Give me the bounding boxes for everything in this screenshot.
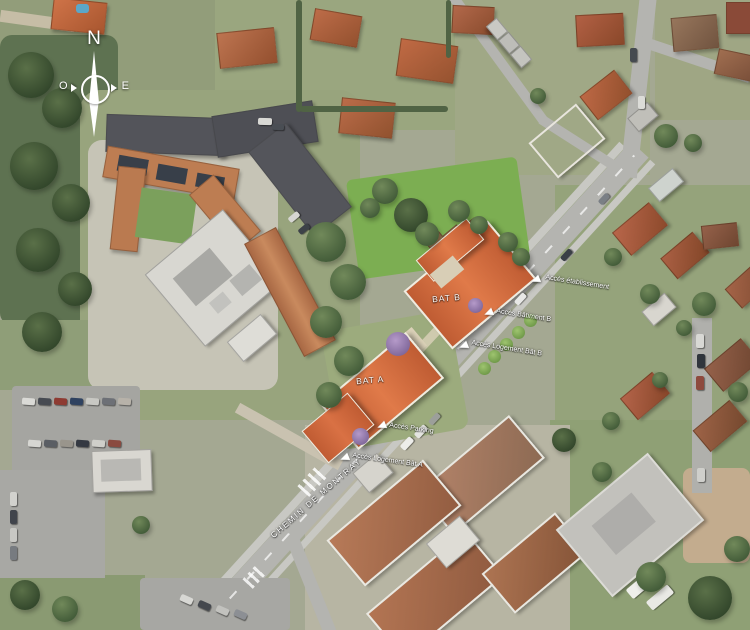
car	[108, 440, 121, 448]
car	[272, 124, 284, 130]
tree	[470, 216, 488, 234]
house-roof	[726, 2, 750, 34]
solar-panel	[156, 164, 188, 185]
car	[70, 398, 83, 406]
compass-east-label: E	[122, 80, 129, 92]
tree	[415, 222, 439, 246]
van	[258, 118, 272, 125]
car	[10, 546, 17, 560]
roof-detail	[209, 292, 232, 314]
car	[76, 440, 89, 448]
swimming-pool	[76, 4, 89, 13]
tree	[52, 596, 78, 622]
house-roof	[216, 27, 277, 69]
courtyard-lawn	[135, 187, 197, 244]
tree	[316, 382, 342, 408]
car	[118, 398, 131, 406]
tree	[306, 222, 346, 262]
car	[10, 528, 17, 542]
tree	[52, 184, 90, 222]
shrub	[512, 326, 525, 339]
compass-north-label: N	[87, 28, 101, 50]
tree	[684, 134, 702, 152]
hedge	[300, 106, 448, 112]
parking-lot	[0, 470, 105, 578]
car	[10, 492, 17, 506]
house-roof	[671, 14, 720, 52]
tree	[22, 312, 62, 352]
house-roof	[575, 13, 625, 47]
tree	[592, 462, 612, 482]
car	[697, 468, 705, 482]
house-roof	[701, 222, 739, 250]
tree	[8, 52, 54, 98]
tree	[330, 264, 366, 300]
tree	[530, 88, 546, 104]
car	[44, 440, 57, 448]
hedge	[446, 0, 451, 58]
car	[638, 96, 645, 109]
tree	[636, 562, 666, 592]
tree	[724, 536, 750, 562]
flowering-tree	[386, 332, 410, 356]
tree	[360, 198, 380, 218]
compass-east-arrow-icon	[111, 84, 117, 92]
house-roof	[338, 97, 395, 138]
car	[697, 354, 705, 368]
car	[102, 398, 115, 406]
aerial-site-plan: BAT B BAT A	[0, 0, 750, 630]
shrub	[478, 362, 491, 375]
tree	[604, 248, 622, 266]
tree	[728, 382, 748, 402]
car	[60, 440, 73, 448]
building-roof	[91, 449, 152, 493]
car	[54, 398, 67, 406]
tree	[688, 576, 732, 620]
compass: N O E	[56, 28, 132, 140]
car	[38, 398, 51, 406]
car	[696, 376, 704, 390]
car	[10, 510, 17, 524]
car	[92, 440, 105, 448]
hedge	[296, 0, 302, 112]
tree	[676, 320, 692, 336]
tree	[448, 200, 470, 222]
tree	[552, 428, 576, 452]
tree	[512, 248, 530, 266]
flowering-tree	[352, 428, 369, 445]
car	[86, 398, 99, 406]
tree	[654, 124, 678, 148]
flowering-tree	[468, 298, 483, 313]
car	[696, 334, 704, 348]
car	[28, 440, 41, 448]
compass-ring-icon	[81, 75, 110, 104]
tree	[310, 306, 342, 338]
tree	[10, 142, 58, 190]
tree	[602, 412, 620, 430]
tree	[58, 272, 92, 306]
compass-west-label: O	[59, 80, 68, 92]
compass-west-arrow-icon	[71, 84, 77, 92]
tree	[692, 292, 716, 316]
tree	[334, 346, 364, 376]
parking-area	[140, 578, 290, 630]
tree	[16, 228, 60, 272]
car	[22, 398, 35, 406]
tree	[652, 372, 668, 388]
tree	[132, 516, 150, 534]
roof-detail	[592, 492, 656, 555]
tree	[10, 580, 40, 610]
car	[630, 48, 637, 62]
tree	[640, 284, 660, 304]
roof-detail	[101, 458, 142, 481]
